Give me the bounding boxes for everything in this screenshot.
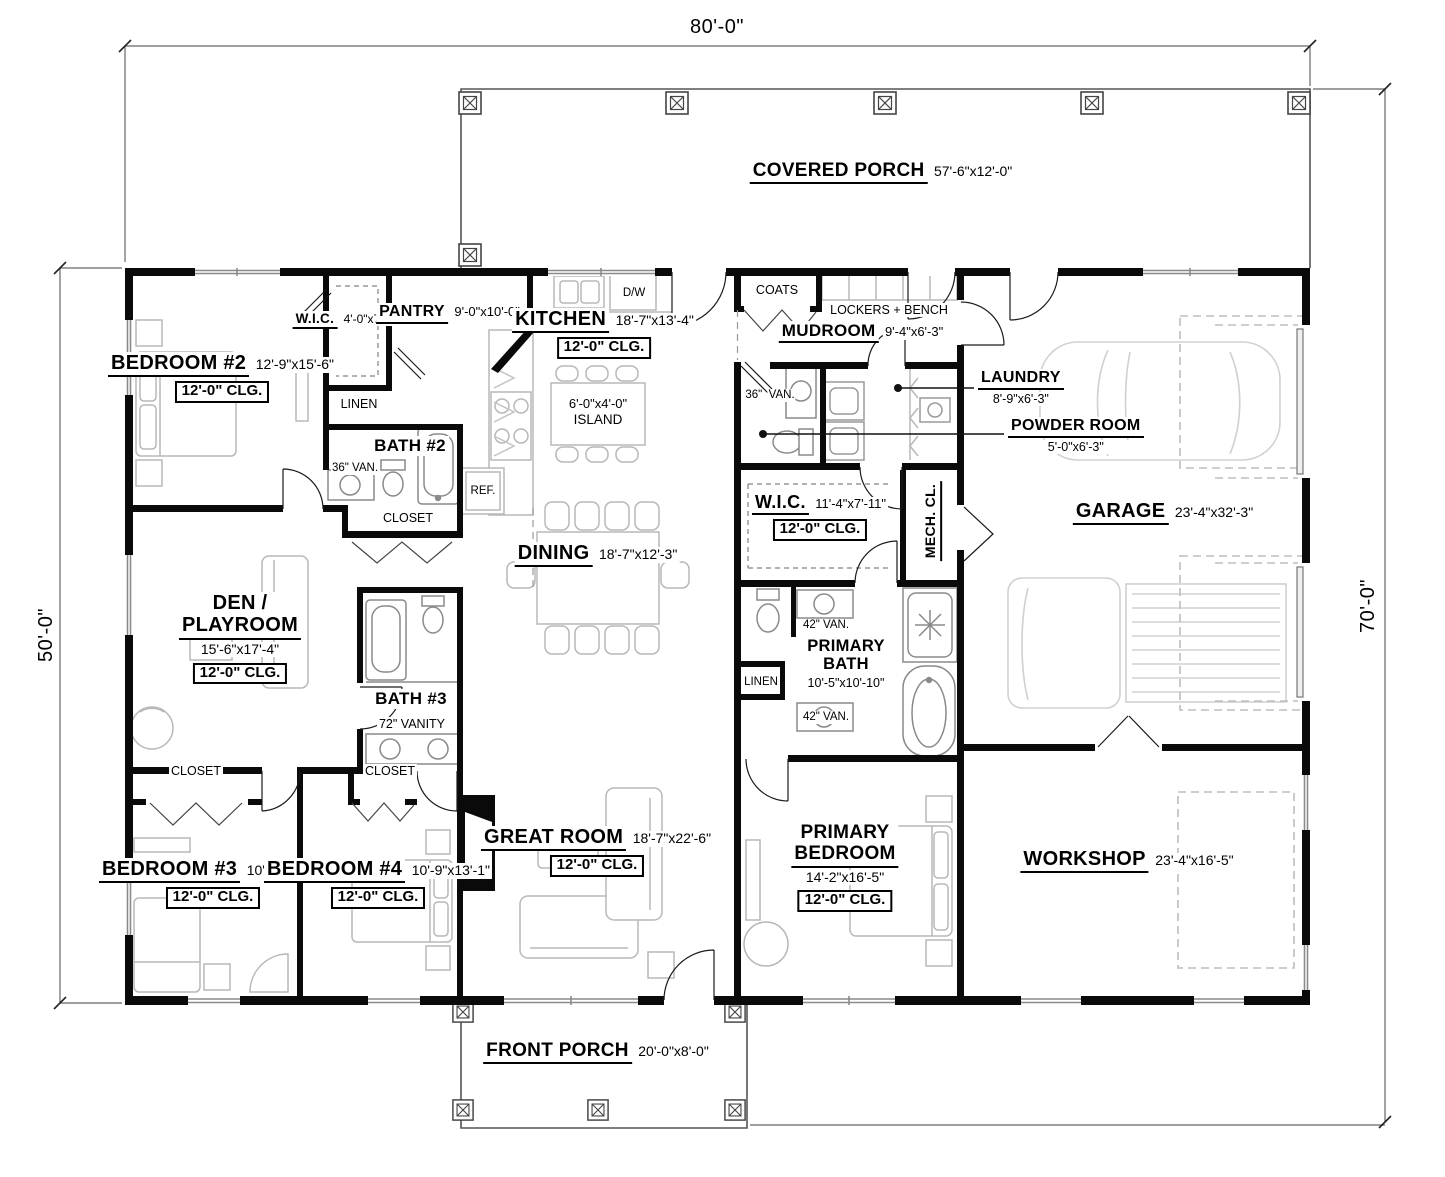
closet-bedroom4-label: CLOSET: [363, 762, 417, 780]
room-name: GARAGE: [1073, 500, 1169, 525]
island-label: 6'-0"x4'-0" ISLAND: [569, 397, 627, 427]
room-name: GREAT ROOM: [481, 826, 626, 851]
closet-bedroom3-label: CLOSET: [169, 762, 223, 780]
refrigerator-label: REF.: [470, 481, 497, 499]
room-label-garage: GARAGE 23'-4"x32'-3": [1073, 500, 1255, 525]
room-name: MUDROOM: [779, 321, 879, 343]
coats-label: COATS: [754, 281, 800, 299]
room-name: FRONT PORCH: [483, 1040, 632, 1064]
room-name-line1: DEN /: [179, 592, 301, 614]
room-dims: 10'-5"x10'-10": [806, 676, 887, 690]
room-dims: 18'-7"x13'-4": [614, 313, 696, 329]
ref-text: REF.: [470, 485, 497, 498]
room-name: LAUNDRY: [978, 369, 1064, 390]
ceiling-height-tag: 12'-0" CLG.: [175, 381, 270, 403]
room-name-line1: PRIMARY: [804, 637, 888, 655]
dishwasher-label: D/W: [622, 283, 646, 301]
powder-fixtures: [773, 366, 816, 455]
room-label-den: DEN / PLAYROOM 15'-6"x17'-4" 12'-0" CLG.: [179, 592, 301, 684]
room-label-mudroom: MUDROOM 9'-4"x6'-3": [779, 321, 945, 343]
room-label-wic-primary: W.I.C. 11'-4"x7'-11" 12'-0" CLG.: [752, 492, 888, 541]
vanity42-upper-label: 42" VAN.: [802, 615, 850, 633]
room-label-primary-bath: PRIMARY BATH 10'-5"x10'-10": [804, 637, 888, 692]
vanity-text: 72" VANITY: [377, 717, 447, 731]
vanity36-powder-label: 36" VAN.: [744, 385, 795, 403]
vanity72-label: 72" VANITY: [377, 715, 447, 733]
room-label-kitchen: KITCHEN 18'-7"x13'-4" 12'-0" CLG.: [512, 308, 696, 359]
dw-text: D/W: [622, 287, 646, 300]
room-name-line2: PLAYROOM: [179, 614, 301, 639]
linen-bedroom2-label: LINEN: [339, 395, 380, 413]
room-label-pantry: PANTRY 9'-0"x10'-0": [376, 303, 522, 324]
vanity-text-line1: 36": [744, 389, 763, 402]
room-dims: 8'-9"x6'-3": [978, 392, 1064, 406]
closet-text: CLOSET: [381, 511, 435, 525]
room-name: DINING: [515, 542, 593, 567]
room-name: BEDROOM #2: [108, 352, 249, 377]
vanity-text: 42" VAN.: [802, 619, 850, 632]
closet-text: CLOSET: [363, 764, 417, 778]
room-name-line1: PRIMARY: [791, 822, 898, 843]
linen-text: LINEN: [743, 676, 779, 689]
vanity36-bath2-label: 36" VAN.: [331, 458, 379, 476]
room-dims: 15'-6"x17'-4": [199, 642, 281, 658]
coats-text: COATS: [754, 283, 800, 297]
room-dims: 20'-0"x8'-0": [636, 1044, 711, 1060]
ceiling-height-tag: 12'-0" CLG.: [193, 663, 288, 685]
room-label-bedroom2: BEDROOM #2 12'-9"x15'-6" 12'-0" CLG.: [108, 352, 336, 403]
room-dims: 5'-0"x6'-3": [1008, 440, 1144, 454]
room-name: BATH #2: [371, 436, 449, 456]
room-dims: 57'-6"x12'-0": [932, 164, 1014, 180]
linen-primary-label: LINEN: [743, 672, 779, 690]
room-label-workshop: WORKSHOP 23'-4"x16'-5": [1020, 848, 1235, 873]
room-label-great-room: GREAT ROOM 18'-7"x22'-6" 12'-0" CLG.: [481, 826, 713, 877]
great-room-furniture: [520, 788, 674, 978]
room-dims: 18'-7"x12'-3": [597, 547, 679, 563]
room-dims: 18'-7"x22'-6": [631, 831, 713, 847]
ceiling-height-tag: 12'-0" CLG.: [773, 519, 868, 541]
room-label-primary-bedroom: PRIMARY BEDROOM 14'-2"x16'-5" 12'-0" CLG…: [791, 822, 898, 912]
floor-plan: 80'-0" 50'-0" 70'-0" COVERED PORCH 57'-6…: [0, 0, 1445, 1177]
room-name: BEDROOM #3: [99, 858, 240, 883]
vanity42-lower-label: 42" VAN.: [802, 707, 850, 725]
lockers-bench-label: LOCKERS + BENCH: [828, 301, 950, 319]
dimension-left: 50'-0": [35, 604, 57, 666]
ceiling-height-tag: 12'-0" CLG.: [166, 887, 261, 909]
dimension-top-value: 80'-0": [686, 16, 748, 38]
room-dims: 11'-4"x7'-11": [813, 497, 888, 512]
dining-table: [507, 502, 689, 654]
vanity-text: 42" VAN.: [802, 711, 850, 724]
room-dims: 10'-9"x13'-1": [410, 863, 492, 879]
room-dims: 23'-4"x32'-3": [1173, 505, 1255, 521]
room-label-powder-room: POWDER ROOM 5'-0"x6'-3": [1008, 417, 1144, 454]
truck-outline: [1008, 578, 1286, 708]
room-name: BATH #3: [372, 689, 450, 709]
room-label-bath3: BATH #3: [372, 689, 450, 709]
room-name: W.I.C.: [293, 311, 338, 329]
room-label-front-porch: FRONT PORCH 20'-0"x8'-0": [483, 1040, 711, 1064]
room-dims: 14'-2"x16'-5": [804, 870, 886, 886]
linen-text: LINEN: [339, 397, 380, 411]
floor-plan-drawing: [0, 0, 1445, 1177]
dimension-right-value: 70'-0": [1357, 575, 1379, 637]
room-name: KITCHEN: [512, 308, 609, 333]
vanity-text: 36" VAN.: [331, 462, 379, 475]
room-label-bedroom4: BEDROOM #4 10'-9"x13'-1" 12'-0" CLG.: [264, 858, 492, 909]
ceiling-height-tag: 12'-0" CLG.: [550, 855, 645, 877]
room-dims: 23'-4"x16'-5": [1153, 853, 1235, 869]
room-dims: 9'-4"x6'-3": [883, 325, 945, 340]
ceiling-height-tag: 12'-0" CLG.: [557, 337, 652, 359]
room-name: POWDER ROOM: [1008, 417, 1144, 438]
room-label-laundry: LAUNDRY 8'-9"x6'-3": [978, 369, 1064, 406]
room-label-bath2: BATH #2: [371, 436, 449, 456]
washer-dryer: [824, 368, 950, 460]
room-name: WORKSHOP: [1020, 848, 1148, 873]
dimension-left-value: 50'-0": [35, 604, 57, 666]
room-label-mech-closet: MECH. CL.: [922, 481, 942, 561]
ceiling-height-tag: 12'-0" CLG.: [798, 890, 893, 912]
dimension-right: 70'-0": [1357, 575, 1379, 637]
closet-text: CLOSET: [169, 764, 223, 778]
room-name-line2: BEDROOM: [791, 843, 898, 867]
room-name: PANTRY: [376, 303, 448, 324]
dimension-top: 80'-0": [686, 16, 748, 38]
room-name: W.I.C.: [752, 492, 809, 515]
lockers-bench-text: LOCKERS + BENCH: [828, 303, 950, 317]
closet-bath2-label: CLOSET: [381, 509, 435, 527]
island-dims: 6'-0"x4'-0": [569, 397, 627, 412]
room-dims: 12'-9"x15'-6": [254, 357, 336, 373]
ceiling-height-tag: 12'-0" CLG.: [331, 887, 426, 909]
bath3-fixtures: [366, 596, 460, 764]
room-name: BEDROOM #4: [264, 858, 405, 883]
island-name: ISLAND: [569, 412, 627, 427]
room-label-covered-porch: COVERED PORCH 57'-6"x12'-0": [750, 160, 1015, 184]
vanity-text-line2: VAN.: [768, 389, 796, 402]
room-name: MECH. CL.: [923, 481, 942, 561]
room-name-line2: BATH: [804, 655, 888, 673]
room-label-dining: DINING 18'-7"x12'-3": [515, 542, 680, 567]
room-name: COVERED PORCH: [750, 160, 928, 184]
